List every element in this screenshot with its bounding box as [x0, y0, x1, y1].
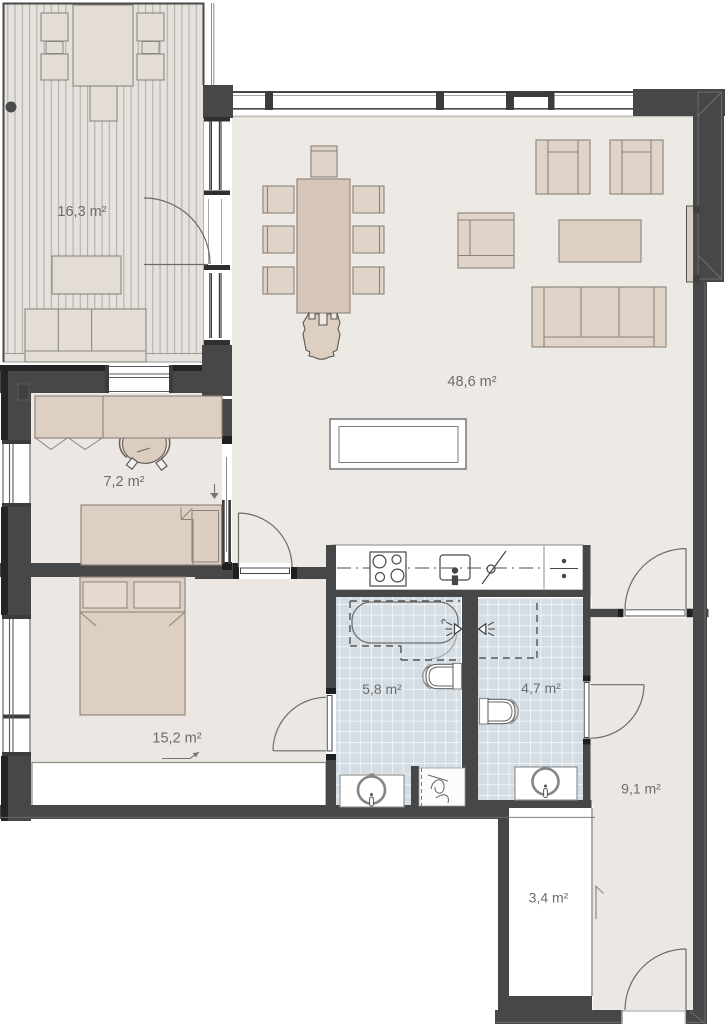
- svg-text:5,8 m²: 5,8 m²: [362, 681, 402, 697]
- svg-text:3,4 m²: 3,4 m²: [529, 890, 569, 906]
- svg-text:7,2 m²: 7,2 m²: [103, 474, 144, 490]
- svg-text:15,2 m²: 15,2 m²: [152, 731, 201, 747]
- svg-text:48,6 m²: 48,6 m²: [447, 374, 496, 390]
- svg-text:16,3 m²: 16,3 m²: [57, 204, 106, 220]
- svg-text:9,1 m²: 9,1 m²: [621, 781, 661, 797]
- svg-text:4,7 m²: 4,7 m²: [521, 680, 561, 696]
